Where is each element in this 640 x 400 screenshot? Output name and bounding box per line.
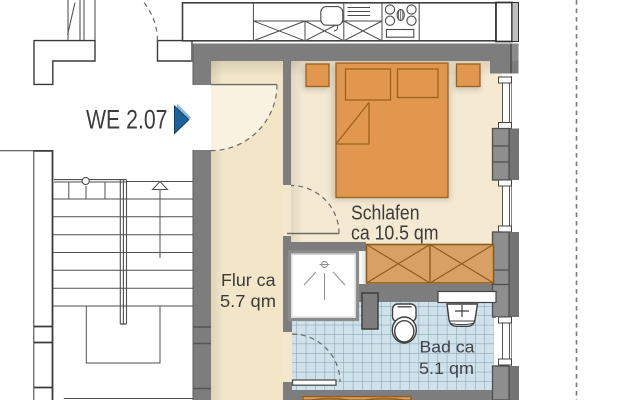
svg-text:ca 10.5 qm: ca 10.5 qm <box>351 223 439 245</box>
svg-text:WE 2.07: WE 2.07 <box>86 105 168 135</box>
svg-text:Flur ca: Flur ca <box>221 270 276 290</box>
svg-text:5.1 qm: 5.1 qm <box>419 359 474 378</box>
svg-text:5.7 qm: 5.7 qm <box>220 291 276 311</box>
svg-text:Bad ca: Bad ca <box>420 338 476 357</box>
svg-text:Schlafen: Schlafen <box>351 203 420 225</box>
